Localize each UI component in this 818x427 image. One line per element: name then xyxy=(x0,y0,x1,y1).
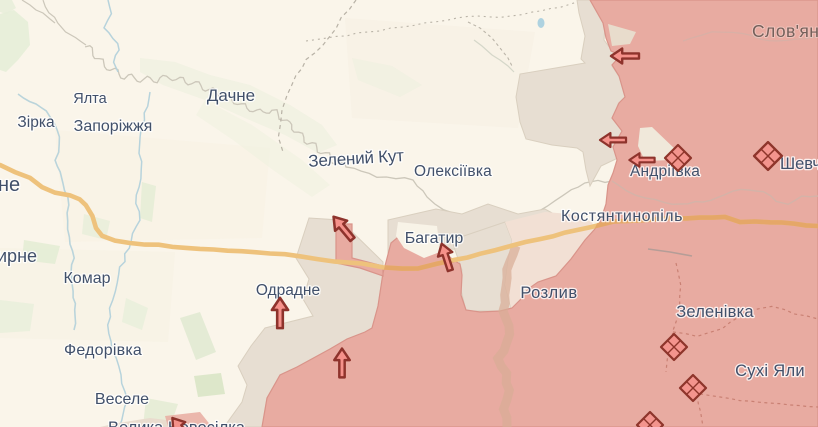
svg-text:Одрадне: Одрадне xyxy=(256,282,320,299)
svg-text:Веселе: Веселе xyxy=(95,391,149,408)
svg-text:Зірка: Зірка xyxy=(17,114,55,131)
svg-text:не: не xyxy=(0,174,20,196)
svg-text:Федорівка: Федорівка xyxy=(64,342,142,359)
svg-text:Олексіївка: Олексіївка xyxy=(414,163,492,180)
svg-text:Сухі Яли: Сухі Яли xyxy=(735,362,805,380)
svg-text:ирне: ирне xyxy=(0,246,37,266)
svg-text:Шевченко: Шевченко xyxy=(780,155,818,173)
svg-text:Костянтинопіль: Костянтинопіль xyxy=(561,208,683,225)
svg-text:Ялта: Ялта xyxy=(73,91,107,107)
svg-text:Розлив: Розлив xyxy=(520,284,577,302)
svg-text:Комар: Комар xyxy=(63,270,110,287)
svg-text:Запоріжжя: Запоріжжя xyxy=(74,118,153,135)
svg-text:Слов'янка: Слов'янка xyxy=(752,21,818,41)
svg-text:Дачне: Дачне xyxy=(207,86,255,105)
svg-text:Зеленівка: Зеленівка xyxy=(676,303,754,321)
svg-text:Багатир: Багатир xyxy=(405,230,464,247)
